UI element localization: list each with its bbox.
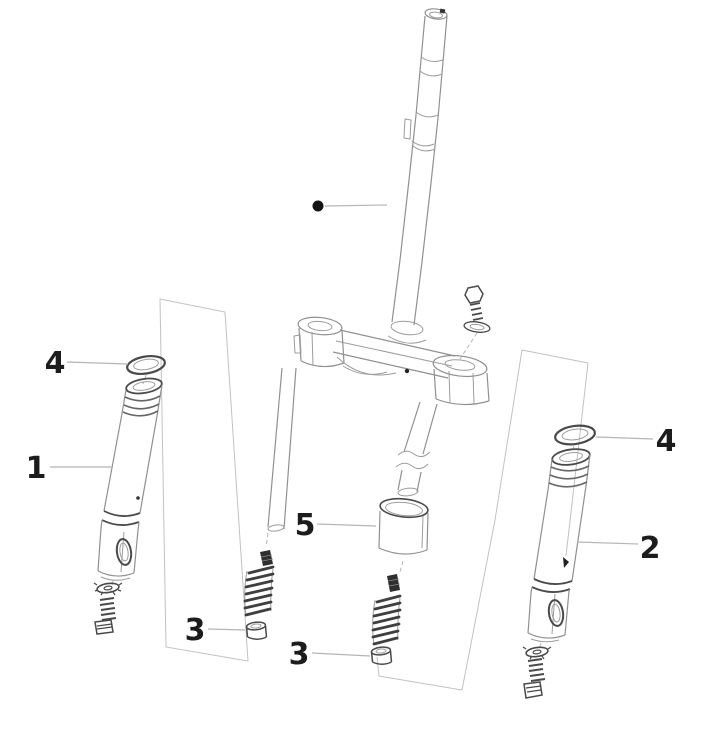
callout-3-left: 3 <box>185 613 245 648</box>
bushing-left <box>246 621 266 639</box>
seal-ring-right <box>554 423 596 446</box>
star-washer-left <box>94 582 122 595</box>
callout-5: 5 <box>295 508 376 543</box>
callout-3-left-label: 3 <box>185 613 206 648</box>
callout-1: 1 <box>26 451 112 486</box>
exploded-diagram: 1 4 4 2 5 3 3 <box>0 0 720 738</box>
callout-stem <box>313 201 388 212</box>
spring-seat-part-5 <box>379 497 429 555</box>
clamp-bolt <box>460 286 491 359</box>
bullet-marker <box>313 201 324 212</box>
callout-4-right-label: 4 <box>656 424 677 459</box>
callout-4-left: 4 <box>45 346 128 381</box>
left-group-box <box>160 299 248 661</box>
left-fork-leg <box>94 354 166 634</box>
triple-clamp <box>294 315 489 404</box>
steering-stem-tube <box>392 8 448 325</box>
callout-3-right-label: 3 <box>289 637 310 672</box>
seal-ring-left <box>126 354 166 377</box>
bushing-right <box>371 646 391 664</box>
bottom-bolt-right <box>524 659 545 698</box>
callout-2-label: 2 <box>640 531 661 566</box>
right-group-box <box>377 350 588 690</box>
bottom-bolt-left <box>95 598 116 634</box>
right-fork-leg <box>523 423 596 698</box>
callout-4-left-label: 4 <box>45 346 66 381</box>
left-fork-internals <box>245 368 296 639</box>
callout-3-right: 3 <box>289 637 370 672</box>
callout-2: 2 <box>577 531 660 566</box>
callout-5-label: 5 <box>295 508 316 543</box>
star-washer-right <box>523 646 551 659</box>
diagram-canvas: 1 4 4 2 5 3 3 <box>0 0 720 738</box>
callout-1-label: 1 <box>26 451 47 486</box>
callout-4-right: 4 <box>596 424 676 459</box>
right-fork-internals <box>371 402 437 664</box>
